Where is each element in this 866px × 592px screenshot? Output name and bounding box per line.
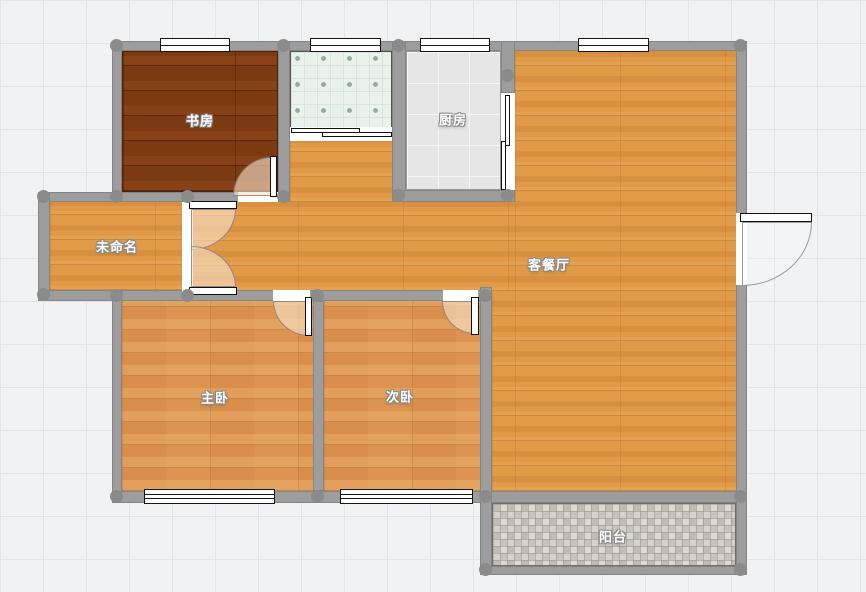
master-door-leaf[interactable]	[305, 297, 312, 336]
entrance-door-arc	[742, 222, 812, 286]
wall-left-upper[interactable]	[112, 41, 122, 202]
wall-kitchen-bottom[interactable]	[392, 190, 515, 202]
unnamed-door-leaf-bottom[interactable]	[189, 287, 237, 295]
wall-node[interactable]	[734, 563, 747, 576]
wall-node[interactable]	[37, 190, 50, 203]
room-label-living: 客餐厅	[528, 255, 570, 274]
room-label-study: 书房	[186, 111, 214, 130]
kitchen-window[interactable]	[420, 38, 490, 52]
second-window[interactable]	[340, 489, 473, 504]
bathroom-sliding-panel-2[interactable]	[322, 132, 392, 137]
wall-balcony-bottom[interactable]	[480, 566, 747, 575]
wall-bathroom-kitchen[interactable]	[392, 41, 406, 202]
room-label-master: 主卧	[201, 388, 229, 407]
wall-node[interactable]	[311, 490, 324, 503]
wall-node[interactable]	[110, 190, 123, 203]
study-door-leaf[interactable]	[270, 156, 277, 197]
wall-node[interactable]	[277, 39, 290, 52]
master-window[interactable]	[144, 489, 275, 504]
wall-node[interactable]	[37, 288, 50, 301]
wall-node[interactable]	[734, 39, 747, 52]
room-label-unnamed: 未命名	[96, 237, 138, 256]
unnamed-door-leaf-top[interactable]	[189, 201, 237, 209]
wall-master-left[interactable]	[112, 290, 122, 503]
wall-node[interactable]	[479, 289, 492, 302]
wall-node[interactable]	[479, 563, 492, 576]
wall-node[interactable]	[181, 289, 194, 302]
wall-bedrooms-top[interactable]	[38, 290, 492, 301]
wall-master-second[interactable]	[313, 301, 324, 491]
wall-node[interactable]	[110, 490, 123, 503]
wall-second-right[interactable]	[480, 287, 492, 575]
room-label-kitchen: 厨房	[439, 110, 467, 129]
wall-kitchen-right[interactable]	[501, 41, 515, 93]
floorplan-canvas: 书房 厨房 客餐厅 未命名 主卧 次卧 阳台	[0, 0, 866, 592]
room-label-balcony: 阳台	[599, 527, 627, 546]
wall-node[interactable]	[110, 39, 123, 52]
room-label-second: 次卧	[386, 387, 414, 406]
wall-node[interactable]	[392, 189, 405, 202]
kitchen-sliding-panel-1[interactable]	[505, 95, 510, 146]
wall-node[interactable]	[277, 190, 290, 203]
kitchen-sliding-panel-2[interactable]	[501, 141, 506, 190]
living-floor-hall-top[interactable]	[290, 141, 392, 202]
wall-unnamed-left[interactable]	[38, 192, 50, 300]
bathroom-floor[interactable]	[290, 51, 392, 128]
second-door-leaf[interactable]	[471, 297, 479, 335]
living-floor-strip[interactable]	[492, 291, 515, 491]
wall-study-bathroom[interactable]	[278, 41, 290, 202]
bathroom-window[interactable]	[310, 38, 381, 52]
wall-node[interactable]	[392, 39, 405, 52]
wall-node[interactable]	[110, 289, 123, 302]
wall-node[interactable]	[181, 190, 194, 203]
wall-node[interactable]	[311, 289, 324, 302]
wall-node[interactable]	[501, 189, 514, 202]
study-window[interactable]	[160, 38, 230, 52]
wall-node[interactable]	[501, 69, 514, 82]
living-floor-corridor[interactable]	[193, 202, 515, 291]
wall-node[interactable]	[479, 490, 492, 503]
living-window[interactable]	[578, 38, 649, 52]
wall-node[interactable]	[734, 490, 747, 503]
entrance-door-leaf[interactable]	[740, 213, 812, 222]
